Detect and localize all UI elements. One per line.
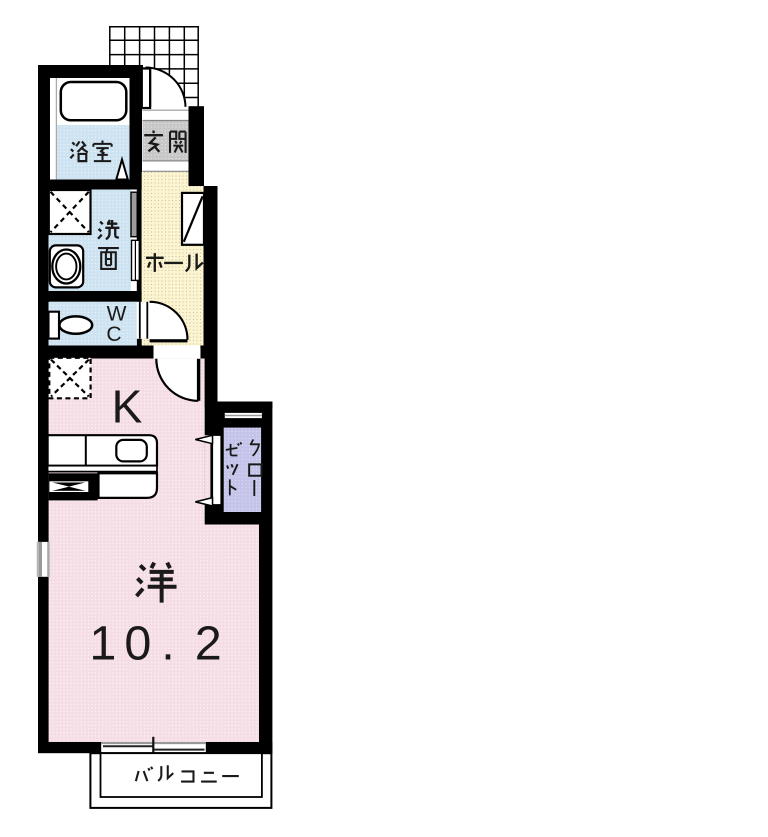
svg-text:1: 1 bbox=[89, 616, 116, 670]
svg-text:.: . bbox=[161, 616, 174, 670]
svg-text:C: C bbox=[106, 323, 121, 346]
svg-text:2: 2 bbox=[195, 616, 222, 670]
svg-text:K: K bbox=[112, 380, 143, 432]
svg-text:0: 0 bbox=[124, 616, 151, 670]
